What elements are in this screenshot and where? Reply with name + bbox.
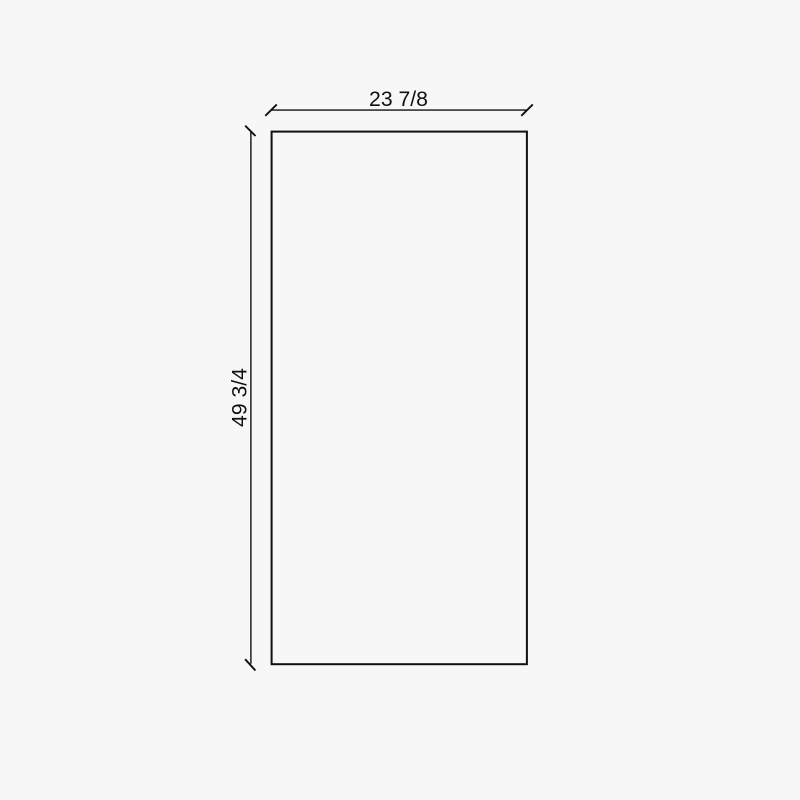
svg-text:23 7/8: 23 7/8 [369,88,428,111]
svg-text:49 3/4: 49 3/4 [229,368,252,427]
